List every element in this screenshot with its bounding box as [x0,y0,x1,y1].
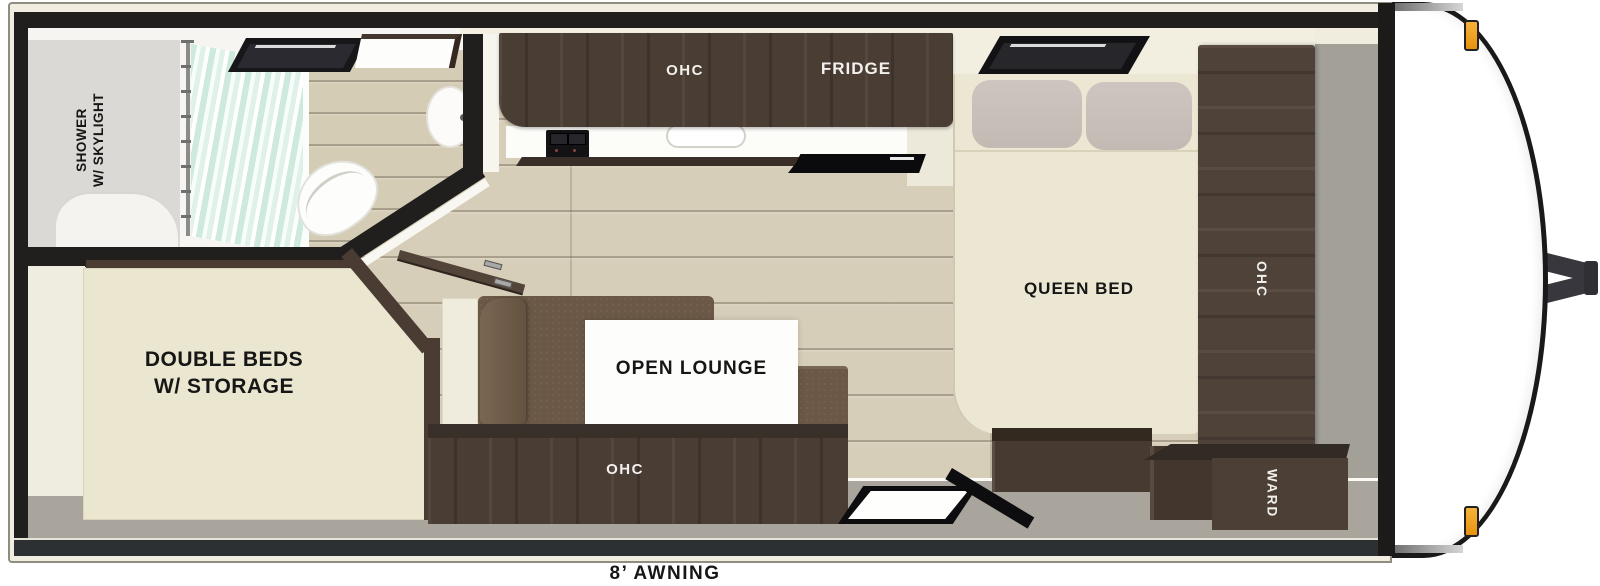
lounge-ohc-cabinet [428,438,848,524]
left-wall [14,12,28,543]
cooktop [546,130,589,158]
shower-curtain [191,44,309,257]
floorplan-canvas: SHOWER W/ SKYLIGHT OHC FRIDGE DOUBLE BED… [0,0,1600,586]
bathroom-label-line1: SHOWER [73,65,90,215]
bedroom-vent-slit [1010,44,1107,47]
queen-bed-label: QUEEN BED [989,279,1169,299]
lounge-label-box: OPEN LOUNGE [585,320,798,428]
queen-bed-head-seam [955,150,1198,152]
sofa-armrest-left [480,298,526,424]
kitchen-wall-face [483,28,499,172]
bed-bench-top-face [992,428,1152,441]
rear-bedroom-label: DOUBLE BEDS W/ STORAGE [94,346,354,400]
bathroom-label: SHOWER W/ SKYLIGHT [73,65,117,215]
lounge-side-wall-face [442,298,478,428]
marker-light-bottom [1464,506,1479,537]
lounge-label: OPEN LOUNGE [585,358,798,380]
top-wall [14,12,1386,28]
fridge-label: FRIDGE [796,59,916,79]
pillow-right [1086,82,1192,150]
front-wall-cream-strip [1310,28,1378,45]
front-wall [1378,3,1395,556]
rear-bedroom-label-line1: DOUBLE BEDS [94,346,354,373]
wardrobe-label: WARD [1258,460,1286,528]
kitchen-ohc-label: OHC [640,62,730,82]
marker-light-top [1464,20,1479,51]
burner-left [550,133,568,145]
rear-bedroom-label-line2: W/ STORAGE [94,373,354,400]
knob-left [555,149,558,152]
burner-right [568,133,586,145]
bedroom-ohc-label: OHC [1248,230,1276,330]
awning-label: 8’ AWNING [525,563,805,585]
bathroom-label-line2: W/ SKYLIGHT [90,65,107,215]
pillow-left [972,80,1082,148]
lounge-ohc-top-face [428,424,848,438]
hitch-coupler-tip [1584,261,1598,295]
bathroom-vent-fan [228,38,368,72]
vent-slit [255,45,337,48]
bed-bench [992,441,1152,492]
bathroom-skylight [355,34,462,68]
kitchen-sink [666,124,746,148]
bedroom-vent-fan [978,36,1150,74]
kitchen-partition-wall [463,28,483,173]
counter-extension-highlight [890,157,914,160]
lounge-ohc-label: OHC [555,461,695,481]
bottom-wall-awning-rail [14,538,1386,556]
knob-right [573,149,576,152]
